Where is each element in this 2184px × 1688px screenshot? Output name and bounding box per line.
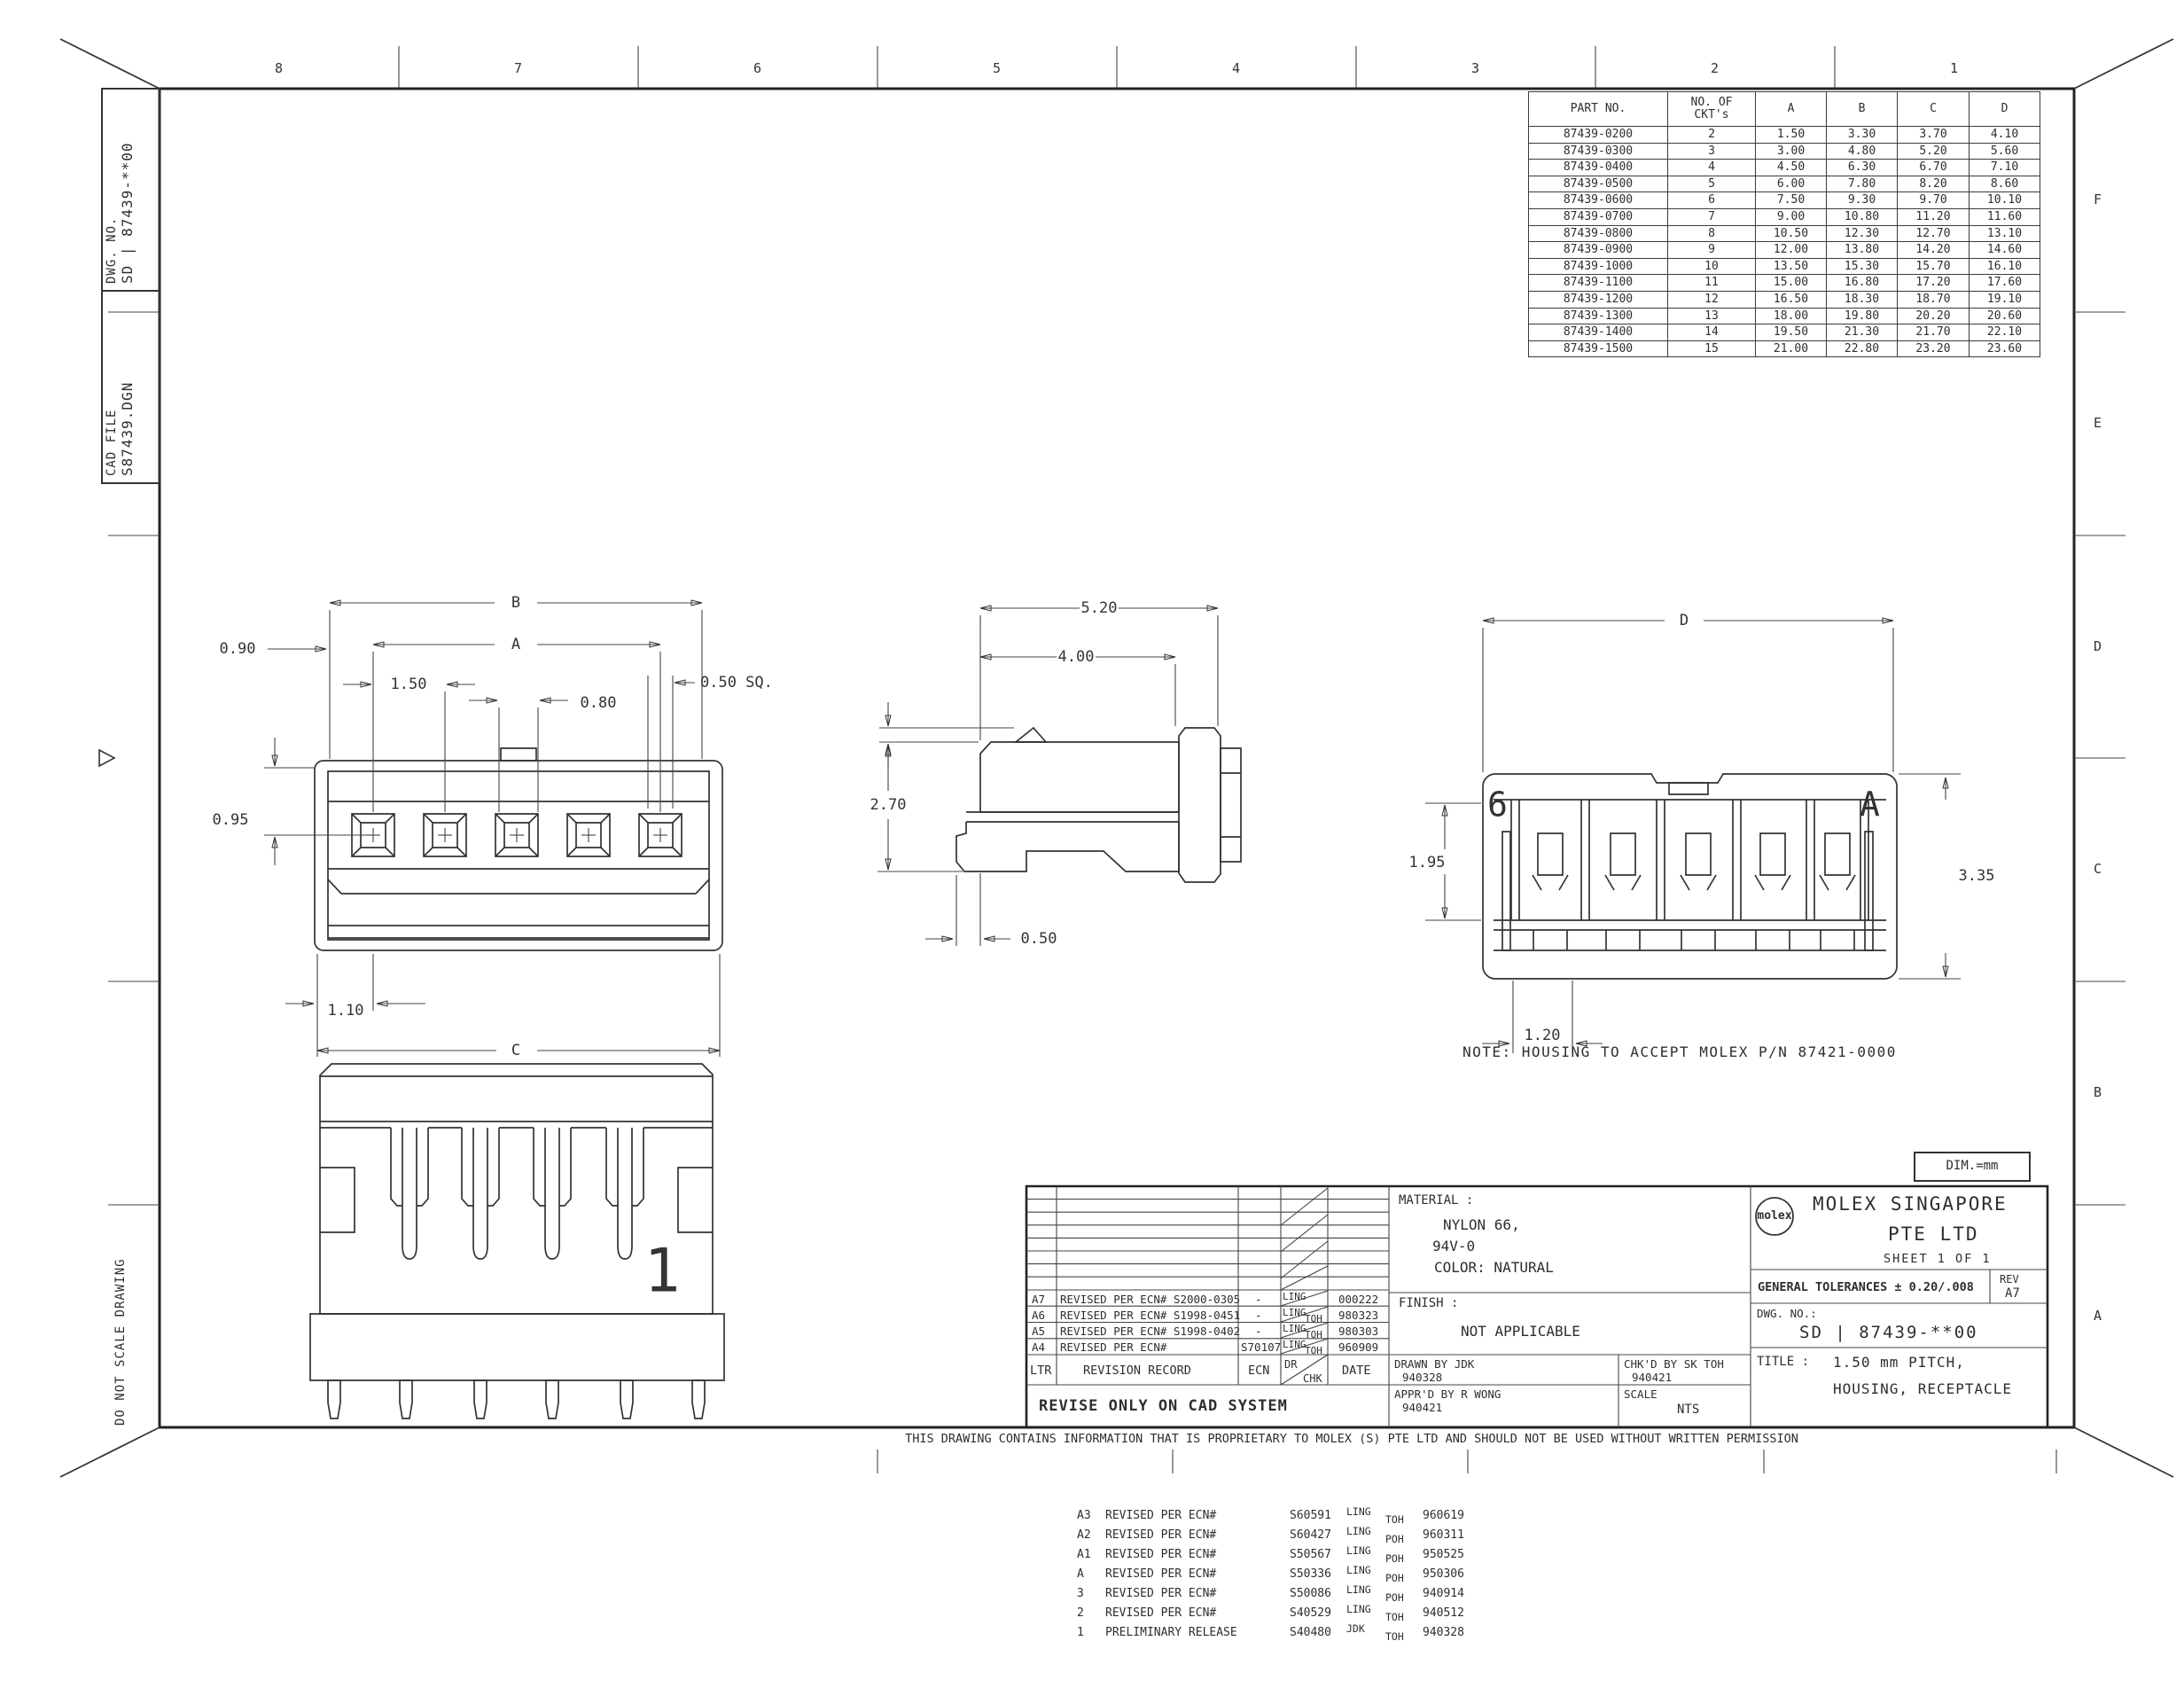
- zone-col-3: 3: [1471, 60, 1479, 76]
- table-row: 87439-040044.506.306.707.10: [1529, 160, 2040, 176]
- company-name-1: MOLEX SINGAPORE: [1813, 1193, 2008, 1215]
- rev-header-date: DATE: [1342, 1364, 1371, 1378]
- approved-by: APPR'D BY R WONG: [1394, 1387, 1501, 1401]
- table-row: 87439-11001115.0016.8017.2017.60: [1529, 275, 2040, 292]
- rev-ecn: -: [1255, 1293, 1262, 1306]
- zone-col-4: 4: [1232, 60, 1240, 76]
- dim-pitch-rear: 1.20: [1525, 1027, 1561, 1044]
- rev-dr: LING: [1283, 1339, 1306, 1350]
- cad-file-label: CAD FILE: [105, 294, 119, 481]
- rev-header-chk: CHK: [1303, 1372, 1322, 1385]
- title-value-2: HOUSING, RECEPTACLE: [1833, 1380, 2012, 1397]
- dim-first: 1.10: [328, 1002, 364, 1020]
- material-label: MATERIAL :: [1399, 1193, 1473, 1207]
- dwg-no-value: SD | 87439-**00: [119, 90, 136, 289]
- rev-ecn: -: [1255, 1309, 1262, 1322]
- table-row: 87439-14001419.5021.3021.7022.10: [1529, 324, 2040, 341]
- dim-width: 0.80: [581, 694, 617, 712]
- scale-value: NTS: [1677, 1403, 1699, 1417]
- revision-delta-icon: [99, 750, 114, 766]
- rev-ltr: A6: [1032, 1309, 1045, 1322]
- rev-date: 980323: [1338, 1309, 1378, 1322]
- rev-date: 980303: [1338, 1325, 1378, 1338]
- rev-desc: REVISED PER ECN# S2000-0305: [1060, 1293, 1240, 1306]
- drawn-date: 940328: [1402, 1371, 1442, 1384]
- rev-header-record: REVISION RECORD: [1083, 1364, 1191, 1378]
- title-value-1: 1.50 mm PITCH,: [1833, 1354, 1965, 1371]
- dim-height: 0.95: [213, 811, 249, 829]
- zone-row-d: D: [2094, 638, 2102, 654]
- zone-row-a: A: [2094, 1308, 2102, 1324]
- rev-header-dr: DR: [1284, 1358, 1297, 1371]
- side-view: 5.20 4.00 2.70 0.50: [833, 567, 1276, 993]
- part-number-table: PART NO. NO. OFCKT's A B C D 87439-02002…: [1528, 91, 2040, 357]
- finish-value: NOT APPLICABLE: [1461, 1323, 1580, 1340]
- revision-history-row: A1REVISED PER ECN# S50567LING POH950525: [1077, 1548, 1538, 1567]
- revision-history-row: A2REVISED PER ECN# S60427LING POH960311: [1077, 1528, 1538, 1548]
- approved-date: 940421: [1402, 1401, 1442, 1414]
- proprietary-statement: THIS DRAWING CONTAINS INFORMATION THAT I…: [780, 1432, 1923, 1446]
- bottom-view: 1: [292, 1046, 753, 1436]
- zone-col-6: 6: [753, 60, 761, 76]
- dwg-no-block-value: SD | 87439-**00: [1799, 1323, 1978, 1342]
- title-label: TITLE :: [1757, 1355, 1809, 1369]
- dwg-no-label: DWG. NO.: [105, 90, 119, 289]
- rev-ltr: A5: [1032, 1325, 1045, 1338]
- checked-date: 940421: [1632, 1371, 1672, 1384]
- cavity-number-right: A: [1860, 785, 1880, 824]
- rev-header-ltr: LTR: [1030, 1364, 1051, 1378]
- dwg-no-block-label: DWG. NO.:: [1757, 1307, 1817, 1320]
- drawing-sheet: 8 7 6 5 4 3 2 1 F E D C B A DWG. NO. SD …: [0, 0, 2184, 1688]
- drawn-by: DRAWN BY JDK: [1394, 1357, 1474, 1371]
- margin-do-not-scale: DO NOT SCALE DRAWING: [113, 1200, 149, 1426]
- finish-label: FINISH :: [1399, 1296, 1458, 1310]
- rev-date: 960909: [1338, 1340, 1378, 1354]
- table-row: 87439-070079.0010.8011.2011.60: [1529, 208, 2040, 225]
- company-name-2: PTE LTD: [1888, 1223, 1979, 1245]
- zone-row-f: F: [2094, 191, 2102, 207]
- zone-col-2: 2: [1711, 60, 1719, 76]
- cad-file-value: S87439.DGN: [119, 294, 136, 481]
- rev-chk: TOH: [1305, 1329, 1322, 1340]
- table-row: 87439-15001521.0022.8023.2023.60: [1529, 340, 2040, 357]
- revision-history-row: 2REVISED PER ECN# S40529LING TOH940512: [1077, 1606, 1538, 1626]
- rev-desc: REVISED PER ECN# S1998-0451: [1060, 1309, 1240, 1322]
- dim-inner: 1.95: [1409, 854, 1446, 871]
- material-value-1: NYLON 66,: [1443, 1216, 1520, 1233]
- rev-ecn: S70107: [1241, 1340, 1281, 1354]
- table-row: 87439-0800810.5012.3012.7013.10: [1529, 225, 2040, 242]
- dim-units: DIM.=mm: [1915, 1159, 2030, 1173]
- dim-d: D: [1680, 612, 1689, 629]
- col-b: B: [1827, 92, 1898, 127]
- rev-ltr: A7: [1032, 1293, 1045, 1306]
- revision-history-row: 1PRELIMINARY RELEASE S40480JDK TOH940328: [1077, 1626, 1538, 1645]
- cavity-number-left: 6: [1487, 785, 1508, 824]
- rev-dr: LING: [1283, 1291, 1306, 1302]
- revise-cad-note: REVISE ONLY ON CAD SYSTEM: [1039, 1397, 1288, 1415]
- rev-date: 000222: [1338, 1293, 1378, 1306]
- revision-history-row: AREVISED PER ECN# S50336LING POH950306: [1077, 1567, 1538, 1587]
- table-row: 87439-020021.503.303.704.10: [1529, 127, 2040, 144]
- checked-by: CHK'D BY SK TOH: [1624, 1357, 1724, 1371]
- rev-dr: LING: [1283, 1323, 1306, 1334]
- rev-desc: REVISED PER ECN#: [1060, 1340, 1166, 1354]
- part-table-header: PART NO. NO. OFCKT's A B C D: [1529, 92, 2040, 127]
- material-value-3: COLOR: NATURAL: [1434, 1259, 1554, 1276]
- dim-foot: 0.50: [1021, 930, 1057, 948]
- rev-dr: LING: [1283, 1307, 1306, 1318]
- front-view: B A 1.50 0.80 0.50 SQ. 0.90 0.95 1.10 C: [160, 567, 745, 1064]
- zone-col-5: 5: [993, 60, 1001, 76]
- col-part-no: PART NO.: [1529, 92, 1668, 127]
- zone-row-b: B: [2094, 1084, 2102, 1100]
- rev-chk: TOH: [1305, 1345, 1322, 1356]
- zone-col-8: 8: [275, 60, 283, 76]
- table-row: 87439-060067.509.309.7010.10: [1529, 192, 2040, 209]
- dim-depth2: 4.00: [1058, 648, 1095, 666]
- sheet-count: SHEET 1 OF 1: [1884, 1252, 1992, 1266]
- dim-depth: 5.20: [1081, 599, 1118, 617]
- revision-history-row: A3REVISED PER ECN# S60591LING TOH960619: [1077, 1509, 1538, 1528]
- general-tolerances: GENERAL TOLERANCES ± 0.20/.008: [1758, 1280, 1974, 1294]
- rev-label: REV: [2000, 1273, 2019, 1286]
- scale-label: SCALE: [1624, 1387, 1657, 1401]
- housing-note: NOTE: HOUSING TO ACCEPT MOLEX P/N 87421-…: [1462, 1043, 1897, 1060]
- dim-offset: 0.90: [220, 640, 256, 658]
- dim-a: A: [511, 636, 520, 653]
- col-d: D: [1969, 92, 2040, 127]
- col-c: C: [1898, 92, 1969, 127]
- rev-ltr: A4: [1032, 1340, 1045, 1354]
- col-a: A: [1756, 92, 1827, 127]
- table-row: 87439-12001216.5018.3018.7019.10: [1529, 291, 2040, 308]
- dim-height: 2.70: [870, 796, 907, 814]
- dim-overall: 3.35: [1959, 867, 1995, 885]
- dim-sq: 0.50 SQ.: [700, 674, 773, 692]
- zone-col-7: 7: [514, 60, 522, 76]
- rev-ecn: -: [1255, 1325, 1262, 1338]
- table-row: 87439-13001318.0019.8020.2020.60: [1529, 308, 2040, 324]
- rev-desc: REVISED PER ECN# S1998-0402: [1060, 1325, 1240, 1338]
- rev-chk: TOH: [1305, 1313, 1322, 1325]
- do-not-scale-label: DO NOT SCALE DRAWING: [113, 1200, 128, 1426]
- table-row: 87439-050056.007.808.208.60: [1529, 176, 2040, 192]
- table-row: 87439-030033.004.805.205.60: [1529, 143, 2040, 160]
- margin-dwg-no: DWG. NO. SD | 87439-**00: [105, 90, 160, 289]
- rear-view: 6 A D 1.95 3.35 1.20: [1400, 567, 2021, 1064]
- zone-row-c: C: [2094, 861, 2102, 877]
- rev-value: A7: [2005, 1286, 2020, 1301]
- dim-b: B: [511, 594, 520, 612]
- dim-pitch: 1.50: [391, 676, 427, 693]
- molex-logo-text: molex: [1753, 1209, 1796, 1223]
- zone-col-1: 1: [1950, 60, 1958, 76]
- table-row: 87439-10001013.5015.3015.7016.10: [1529, 258, 2040, 275]
- zone-row-e: E: [2094, 415, 2102, 431]
- material-value-2: 94V-0: [1432, 1238, 1475, 1254]
- circuit-one-label: 1: [644, 1237, 681, 1307]
- rev-header-ecn: ECN: [1248, 1364, 1269, 1378]
- col-ckts: NO. OFCKT's: [1668, 92, 1756, 127]
- margin-cad-file: CAD FILE S87439.DGN: [105, 294, 160, 481]
- revision-history-row: 3REVISED PER ECN# S50086LING POH940914: [1077, 1587, 1538, 1606]
- table-row: 87439-0900912.0013.8014.2014.60: [1529, 242, 2040, 259]
